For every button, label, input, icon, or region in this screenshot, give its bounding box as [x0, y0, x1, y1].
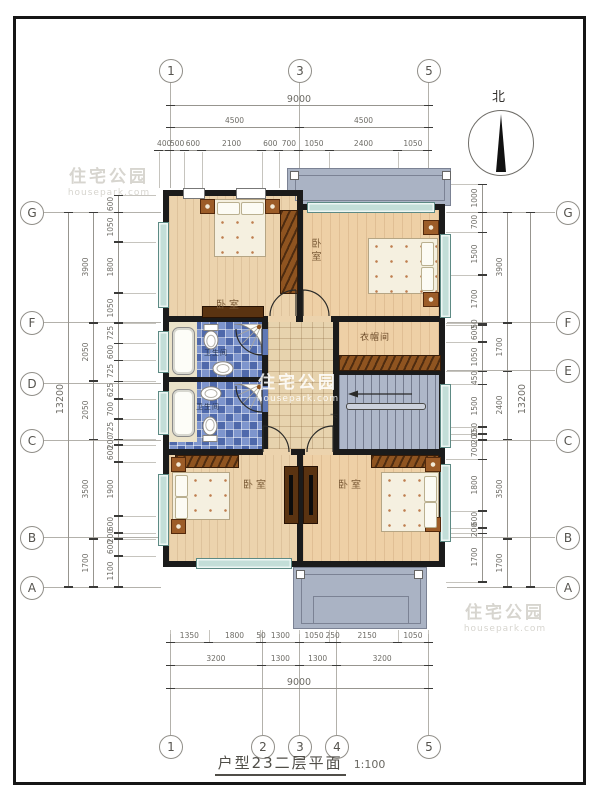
dimension-tick: [503, 439, 512, 441]
nightstand: [171, 457, 186, 472]
grid-bubble-right-E: E: [556, 359, 580, 383]
dimension-line: [170, 688, 428, 689]
dim-label: 4500: [342, 116, 386, 125]
balcony-top-railing: [295, 175, 445, 201]
door-bedroom-bl: [261, 421, 293, 453]
dimension-tick: [424, 642, 433, 644]
nightstand: [171, 519, 186, 534]
room-label-bedroom-tr: 卧室: [307, 238, 322, 264]
dimension-tick: [89, 538, 98, 540]
extension-line: [120, 343, 156, 344]
dimension-line: [93, 212, 94, 587]
dimension-tick: [166, 665, 175, 667]
dim-label: 1700: [470, 535, 480, 579]
dim-label: 1700: [495, 541, 505, 585]
stairs-down-label: 下: [330, 412, 338, 423]
dim-label: 1050: [106, 205, 116, 249]
extension-line: [120, 462, 156, 463]
dimension-tick: [89, 212, 98, 214]
bathtub-top: [172, 327, 195, 375]
dim-label: 13200: [518, 377, 528, 421]
grid-line: [447, 370, 555, 371]
nightstand: [265, 199, 280, 214]
dimension-tick: [295, 665, 304, 667]
extension-line: [120, 516, 156, 517]
extension-line: [120, 399, 156, 400]
dim-label: 1050: [391, 631, 435, 640]
tv-screen: [309, 475, 313, 515]
extension-line: [120, 539, 156, 540]
dim-label: 3900: [495, 245, 505, 289]
grid-line: [428, 634, 429, 735]
dimension-tick: [424, 127, 433, 129]
north-compass: [468, 110, 534, 176]
window-bedroom-bl-left: [158, 474, 169, 546]
grid-line: [44, 587, 161, 588]
dimension-tick: [89, 322, 98, 324]
dimension-tick: [180, 150, 189, 152]
grid-bubble-top-1: 1: [159, 59, 183, 83]
dim-label: 1300: [296, 654, 340, 663]
dimension-tick: [503, 586, 512, 588]
dimension-line: [507, 212, 508, 587]
balcony-bottom-corner-post: [296, 570, 305, 579]
tv-cabinet-br: [303, 466, 318, 524]
room-label-bedroom-tl: 卧室: [216, 296, 242, 311]
pillow: [175, 475, 188, 497]
dimension-tick: [393, 642, 402, 644]
dim-label: 1500: [470, 232, 480, 276]
window-symbol-top-wall: [183, 188, 205, 199]
dimension-tick: [424, 105, 433, 107]
extension-line: [120, 533, 156, 534]
pillow: [424, 476, 437, 502]
extension-line: [120, 419, 156, 420]
room-label-bedroom-br: 卧室: [338, 476, 364, 491]
dim-label: 3500: [495, 467, 505, 511]
dim-label: 1050: [292, 139, 336, 148]
title-scale: 1:100: [354, 758, 386, 771]
dim-label: 1700: [81, 541, 91, 585]
dimension-tick: [89, 586, 98, 588]
extension-line: [184, 152, 185, 188]
dimension-tick: [332, 642, 341, 644]
grid-line: [447, 440, 555, 441]
title-text: 户型23二层平面: [215, 754, 346, 776]
north-label: 北: [492, 86, 505, 105]
window-bath-bottom-left: [158, 391, 169, 435]
extension-line: [202, 152, 203, 188]
grid-line: [262, 634, 263, 735]
dimension-line: [530, 212, 531, 587]
window-stairs-right: [440, 384, 451, 448]
dimension-tick: [197, 150, 206, 152]
door-bath-top: [234, 327, 264, 357]
dimension-tick: [295, 642, 304, 644]
dimension-tick: [423, 150, 432, 152]
dimension-tick: [424, 665, 433, 667]
grid-bubble-left-C: C: [20, 429, 44, 453]
dim-label: 1050: [391, 139, 435, 148]
grid-line: [44, 537, 161, 538]
dimension-tick: [166, 688, 175, 690]
dimension-tick: [257, 665, 266, 667]
grid-bubble-left-G: G: [20, 201, 44, 225]
dimension-tick: [154, 150, 163, 152]
window-bedroom-tr-right: [440, 234, 451, 318]
grid-bubble-right-C: C: [556, 429, 580, 453]
extension-line: [120, 242, 156, 243]
north-needle-icon: [469, 111, 533, 175]
bathtub-bottom: [172, 389, 195, 437]
pillow: [421, 242, 434, 266]
extension-line: [262, 152, 263, 188]
dim-label: 1100: [106, 549, 116, 593]
grid-line: [447, 322, 555, 323]
grid-bubble-left-D: D: [20, 372, 44, 396]
dimension-line: [68, 212, 69, 587]
room-label-bedroom-bl: 卧室: [243, 476, 269, 491]
balcony-top-corner-post: [290, 171, 299, 180]
grid-line: [447, 587, 555, 588]
pillow: [424, 502, 437, 528]
wardrobe-cloakroom: [339, 355, 441, 371]
balcony-bottom-corner-post: [414, 570, 423, 579]
tv-cabinet-bl: [284, 466, 299, 524]
dimension-tick: [64, 212, 73, 214]
grid-bubble-top-3: 3: [288, 59, 312, 83]
dim-label: 600: [171, 139, 215, 148]
toilet-bottom-icon: [202, 416, 218, 442]
door-bedroom-tl: [266, 286, 298, 318]
window-bath-top-left: [158, 331, 169, 373]
pillow: [421, 267, 434, 291]
dimension-tick: [332, 665, 341, 667]
dimension-tick: [294, 150, 303, 152]
dim-label: 3500: [81, 467, 91, 511]
dimension-tick: [64, 586, 73, 588]
window-bedroom-tl-left: [158, 222, 169, 308]
grid-line: [447, 537, 555, 538]
dimension-tick: [503, 538, 512, 540]
extension-line: [120, 293, 156, 294]
sink-bottom-icon: [200, 386, 222, 401]
dim-label: 2400: [495, 383, 505, 427]
extension-line: [120, 360, 156, 361]
dimension-tick: [89, 439, 98, 441]
grid-line: [44, 212, 161, 213]
dimension-tick: [274, 150, 283, 152]
grid-bubble-top-5: 5: [417, 59, 441, 83]
dim-label: 3200: [194, 654, 238, 663]
dimension-tick: [478, 581, 487, 583]
dimension-tick: [526, 212, 535, 214]
nightstand: [425, 457, 441, 472]
dim-label: 9000: [277, 677, 321, 688]
grid-line: [447, 212, 555, 213]
dim-label: 3900: [81, 245, 91, 289]
dimension-tick: [166, 127, 175, 129]
dimension-tick: [526, 586, 535, 588]
dimension-tick: [424, 688, 433, 690]
dim-label: 2050: [81, 330, 91, 374]
tv-screen: [289, 475, 293, 515]
dim-label: 4500: [213, 116, 257, 125]
stairs-floor: [339, 375, 439, 449]
dimension-line: [118, 195, 119, 587]
grid-bubble-right-F: F: [556, 311, 580, 335]
window-bedroom-br-right: [440, 464, 451, 542]
extension-line: [120, 556, 156, 557]
door-bedroom-tr: [301, 286, 333, 318]
dimension-tick: [295, 127, 304, 129]
extension-line: [120, 381, 156, 382]
grid-line: [44, 440, 161, 441]
dim-label: 2050: [81, 388, 91, 432]
dim-label: 3200: [360, 654, 404, 663]
balcony-top-corner-post: [442, 171, 451, 180]
dim-label: 1700: [495, 325, 505, 369]
dim-label: 1350: [167, 631, 211, 640]
wardrobe-tl: [280, 210, 298, 294]
dim-label: 2150: [345, 631, 389, 640]
room-label-bath-top: 卫生间: [204, 348, 228, 358]
dim-label: 13200: [56, 377, 66, 421]
dim-label: 2100: [210, 139, 254, 148]
drawing-title: 户型23二层平面1:100: [150, 752, 450, 773]
dimension-tick: [204, 642, 213, 644]
window-symbol-top-wall: [236, 188, 266, 199]
dimension-tick: [166, 642, 175, 644]
grid-bubble-left-F: F: [20, 311, 44, 335]
dim-label: 2400: [341, 139, 385, 148]
toilet-top-icon: [203, 324, 219, 350]
grid-bubble-right-G: G: [556, 201, 580, 225]
room-label-cloakroom: 衣帽间: [360, 330, 390, 343]
grid-bubble-left-B: B: [20, 526, 44, 550]
dimension-tick: [325, 150, 334, 152]
dimension-tick: [257, 642, 266, 644]
grid-line: [336, 634, 337, 735]
dim-label: 9000: [277, 94, 321, 105]
pillow: [175, 497, 188, 519]
grid-bubble-right-B: B: [556, 526, 580, 550]
grid-bubble-right-A: A: [556, 576, 580, 600]
dimension-line: [170, 105, 428, 106]
dimension-tick: [89, 380, 98, 382]
door-bedroom-br: [303, 421, 335, 453]
dimension-tick: [503, 322, 512, 324]
extension-line: [120, 195, 156, 196]
nightstand: [423, 292, 439, 307]
pillow: [217, 202, 240, 215]
sink-top-icon: [212, 361, 234, 376]
window-balcony-top-door: [307, 202, 435, 213]
dim-label: 1800: [106, 245, 116, 289]
dimension-tick: [503, 212, 512, 214]
grid-line: [170, 82, 171, 188]
grid-line: [170, 634, 171, 735]
dimension-tick: [257, 150, 266, 152]
grid-bubble-left-A: A: [20, 576, 44, 600]
window-bedroom-bl-bottom: [196, 558, 292, 569]
pillow: [241, 202, 264, 215]
dimension-tick: [393, 150, 402, 152]
extension-line: [120, 445, 156, 446]
nightstand: [200, 199, 215, 214]
grid-line: [44, 322, 161, 323]
nightstand: [423, 220, 439, 235]
extension-line: [279, 152, 280, 188]
dimension-tick: [503, 371, 512, 373]
room-label-bath-bottom: 卫生间: [196, 402, 220, 412]
stair-handrail: [346, 403, 426, 410]
balcony-bottom-railing-inner: [313, 596, 409, 624]
stair-direction-arrow: [346, 389, 416, 399]
door-bath-bottom: [234, 384, 264, 414]
extension-line: [159, 152, 160, 188]
dimension-tick: [166, 105, 175, 107]
dimension-tick: [165, 150, 174, 152]
